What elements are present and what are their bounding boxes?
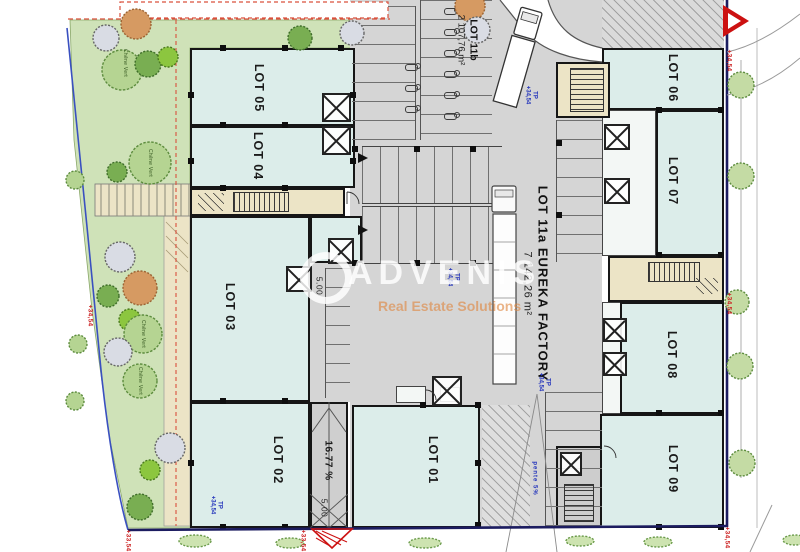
site-boundary-line-left bbox=[67, 28, 128, 530]
column-post bbox=[352, 146, 358, 152]
tree-icon bbox=[140, 460, 160, 480]
tree-icon bbox=[121, 9, 151, 39]
red-level-mark: +34,54 bbox=[726, 49, 733, 71]
lot-08-room bbox=[620, 302, 724, 414]
motorcycle-icon bbox=[405, 64, 418, 71]
tree-icon bbox=[135, 51, 161, 77]
parking-bays bbox=[352, 6, 416, 140]
lot-01-room bbox=[352, 405, 480, 528]
tree-icon bbox=[158, 47, 178, 67]
column-post bbox=[475, 460, 481, 466]
bush-icon bbox=[179, 535, 211, 547]
column-post bbox=[420, 402, 426, 408]
red-level-wrap: +33,54 bbox=[288, 528, 318, 552]
red-level-mark: +34,54 bbox=[726, 292, 733, 314]
stairs-icon bbox=[570, 68, 604, 112]
column-post bbox=[352, 260, 358, 266]
tree-icon bbox=[69, 335, 87, 353]
tree-icon bbox=[107, 162, 127, 182]
motorcycle-icon bbox=[405, 85, 418, 92]
parking-bays bbox=[556, 120, 602, 262]
column-post bbox=[470, 260, 476, 266]
tree-icon bbox=[725, 290, 749, 314]
column-post bbox=[414, 260, 420, 266]
motorcycle-icon bbox=[444, 50, 457, 57]
tree-icon bbox=[288, 26, 312, 50]
column-post bbox=[188, 92, 194, 98]
motorcycle-icon bbox=[405, 106, 418, 113]
tree-label-wrap: Chêne Vert bbox=[135, 143, 165, 183]
parking-ramp bbox=[310, 402, 348, 528]
shaft-icon bbox=[322, 126, 351, 155]
column-post bbox=[282, 185, 288, 191]
shaft-icon bbox=[286, 266, 312, 292]
column-post bbox=[656, 252, 662, 258]
column-post bbox=[718, 107, 724, 113]
red-dashed-reservation bbox=[120, 2, 388, 18]
elevator-icon bbox=[560, 452, 582, 476]
red-level-wrap: +34,54 bbox=[75, 295, 105, 335]
motorcycle-icon bbox=[444, 71, 457, 78]
red-level-mark: +33,54 bbox=[125, 529, 132, 551]
tree-icon bbox=[123, 364, 157, 398]
lot-06-room bbox=[602, 48, 724, 110]
shaft-icon bbox=[328, 238, 354, 264]
column-post bbox=[414, 146, 420, 152]
column-post bbox=[656, 524, 662, 530]
column-post bbox=[338, 45, 344, 51]
column-post bbox=[718, 524, 724, 530]
parking-bays bbox=[325, 268, 350, 398]
tree-label-wrap: Chêne Vert bbox=[128, 314, 158, 354]
column-post bbox=[656, 410, 662, 416]
stairs-icon bbox=[233, 192, 289, 212]
tree-icon bbox=[124, 315, 162, 353]
bush-icon bbox=[783, 535, 800, 545]
parking-bays bbox=[362, 146, 502, 204]
column-post bbox=[718, 252, 724, 258]
column-post bbox=[656, 107, 662, 113]
motorcycle-icon bbox=[444, 29, 457, 36]
tree-icon bbox=[93, 25, 119, 51]
bush-icon bbox=[276, 538, 304, 548]
tree-icon bbox=[119, 309, 141, 331]
column-post bbox=[350, 158, 356, 164]
column-post bbox=[475, 402, 481, 408]
shaft-icon bbox=[603, 352, 627, 376]
tree-label-wrap: Chêne Vert bbox=[125, 361, 155, 401]
stairs-icon bbox=[564, 484, 594, 522]
tree-icon bbox=[728, 163, 754, 189]
column-post bbox=[220, 122, 226, 128]
top-right-hatched-area bbox=[602, 0, 724, 48]
column-post bbox=[220, 45, 226, 51]
column-post bbox=[188, 460, 194, 466]
tree-icon bbox=[123, 271, 157, 305]
column-post bbox=[220, 398, 226, 404]
bush-icon bbox=[409, 538, 441, 548]
tree-icon bbox=[97, 285, 119, 307]
kerb-curve bbox=[727, 14, 800, 95]
column-post bbox=[556, 140, 562, 146]
lot-03-room bbox=[190, 216, 310, 402]
tree-species-label: Chêne Vert bbox=[137, 367, 143, 395]
vent-hatch-icon bbox=[198, 193, 224, 211]
motorcycle-icon bbox=[444, 92, 457, 99]
lot-09-room bbox=[600, 414, 724, 528]
shaft-icon bbox=[604, 124, 630, 150]
pedestrian-path bbox=[164, 214, 190, 526]
shaft-icon bbox=[603, 318, 627, 342]
kerb-curve bbox=[750, 505, 772, 552]
red-level-mark: +34,54 bbox=[724, 526, 731, 548]
tree-icon bbox=[727, 353, 753, 379]
motorcycle-icon bbox=[444, 113, 457, 120]
tree-icon bbox=[102, 50, 142, 90]
column-post bbox=[282, 398, 288, 404]
motorcycle-icon bbox=[444, 8, 457, 15]
vent-hatch-icon bbox=[696, 278, 718, 294]
column-post bbox=[220, 185, 226, 191]
tree-icon bbox=[66, 392, 84, 410]
column-post bbox=[475, 522, 481, 528]
tree-icon bbox=[155, 433, 185, 463]
tree-icon bbox=[104, 338, 132, 366]
entrance-marker-icon bbox=[723, 5, 749, 37]
red-level-mark: +34,54 bbox=[87, 304, 94, 326]
lot-02-room bbox=[190, 402, 310, 528]
column-post bbox=[470, 146, 476, 152]
entry-canopy bbox=[396, 386, 426, 403]
tree-icon bbox=[729, 450, 755, 476]
tree-species-label: Chêne Vert bbox=[122, 49, 128, 77]
column-post bbox=[220, 524, 226, 530]
entrance-marker-icon bbox=[312, 529, 352, 548]
parking-bays bbox=[362, 206, 502, 264]
lower-hatched-strip bbox=[482, 405, 530, 528]
tree-icon bbox=[127, 494, 153, 520]
bush-icon bbox=[644, 537, 672, 547]
site-floor-plan: LOT 05 LOT 04 LOT 03 LOT 02 LOT 01 LOT 0… bbox=[0, 0, 800, 552]
tree-icon bbox=[66, 171, 84, 189]
tree-label-wrap: Chêne Vert bbox=[110, 43, 140, 83]
tree-icon bbox=[728, 72, 754, 98]
tree-species-label: Chêne Vert bbox=[140, 320, 146, 348]
column-post bbox=[282, 524, 288, 530]
tree-species-label: Chêne Vert bbox=[147, 149, 153, 177]
bush-icon bbox=[566, 536, 594, 546]
shaft-icon bbox=[432, 376, 462, 406]
red-level-wrap: +33,54 bbox=[113, 528, 143, 552]
column-post bbox=[188, 158, 194, 164]
lot-07-room bbox=[656, 110, 724, 256]
path-hatch bbox=[166, 222, 188, 272]
column-post bbox=[556, 212, 562, 218]
tree-icon bbox=[129, 142, 171, 184]
shaft-icon bbox=[322, 93, 351, 122]
column-post bbox=[350, 92, 356, 98]
stairs-icon bbox=[648, 262, 700, 282]
column-post bbox=[718, 410, 724, 416]
tree-icon bbox=[105, 242, 135, 272]
column-post bbox=[282, 45, 288, 51]
column-post bbox=[282, 122, 288, 128]
shaft-icon bbox=[604, 178, 630, 204]
red-level-mark: +33,54 bbox=[300, 529, 307, 551]
